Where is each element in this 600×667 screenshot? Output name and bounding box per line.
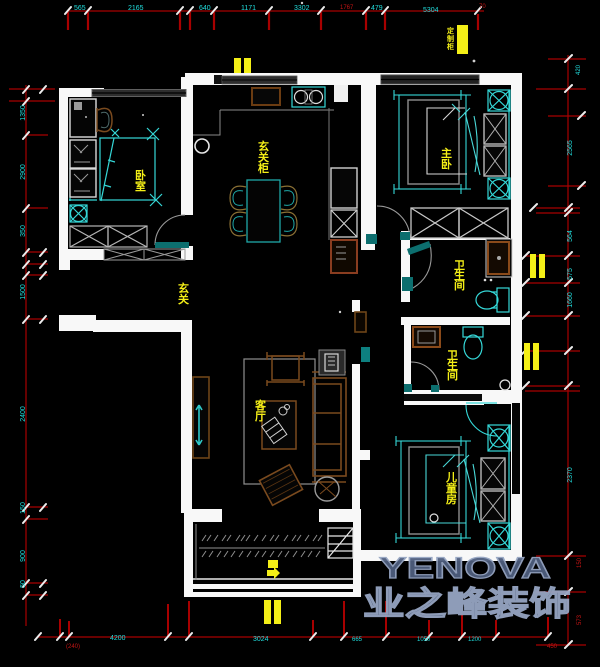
svg-text:479: 479 xyxy=(371,5,383,12)
svg-text:客: 客 xyxy=(254,398,267,412)
svg-text:室: 室 xyxy=(135,179,146,193)
svg-text:制: 制 xyxy=(447,34,454,43)
svg-text:1050: 1050 xyxy=(417,637,431,643)
svg-text:1200: 1200 xyxy=(468,637,482,643)
svg-text:665: 665 xyxy=(352,637,363,643)
svg-text:2900: 2900 xyxy=(20,164,27,180)
svg-text:1660: 1660 xyxy=(567,292,574,308)
svg-text:定: 定 xyxy=(447,26,454,35)
svg-text:565: 565 xyxy=(74,5,86,12)
svg-text:573: 573 xyxy=(577,614,583,625)
svg-text:间: 间 xyxy=(447,369,458,382)
svg-text:业之峰装饰: 业之峰装饰 xyxy=(363,585,571,622)
svg-text:(240): (240) xyxy=(66,644,80,650)
svg-text:柜: 柜 xyxy=(446,42,454,51)
svg-text:150: 150 xyxy=(577,557,583,568)
svg-text:1171: 1171 xyxy=(241,5,256,12)
svg-text:150: 150 xyxy=(20,502,27,514)
svg-text:2565: 2565 xyxy=(567,140,574,156)
svg-text:1767: 1767 xyxy=(340,5,354,11)
svg-text:640: 640 xyxy=(199,5,211,12)
svg-text:3302: 3302 xyxy=(294,5,310,12)
svg-text:450: 450 xyxy=(547,644,558,650)
svg-text:3024: 3024 xyxy=(253,636,269,643)
svg-text:420: 420 xyxy=(576,64,582,75)
svg-text:主: 主 xyxy=(441,146,452,160)
svg-text:5304: 5304 xyxy=(423,7,439,14)
svg-text:4200: 4200 xyxy=(110,635,126,642)
svg-text:玄: 玄 xyxy=(258,139,269,153)
svg-text:900: 900 xyxy=(20,550,27,562)
svg-text:2370: 2370 xyxy=(567,467,574,483)
svg-text:575: 575 xyxy=(567,268,574,280)
svg-text:YENOVA: YENOVA xyxy=(379,552,551,585)
svg-text:1350: 1350 xyxy=(20,105,27,121)
svg-text:关: 关 xyxy=(178,292,189,306)
svg-text:卧: 卧 xyxy=(441,158,452,171)
svg-text:间: 间 xyxy=(454,279,465,292)
svg-text:350: 350 xyxy=(20,225,27,237)
svg-text:房: 房 xyxy=(446,492,457,506)
svg-text:关: 关 xyxy=(258,150,269,164)
svg-text:70: 70 xyxy=(479,4,486,10)
svg-text:2400: 2400 xyxy=(20,406,27,422)
svg-text:1500: 1500 xyxy=(20,284,27,300)
svg-text:童: 童 xyxy=(446,481,457,495)
svg-text:564: 564 xyxy=(567,230,574,242)
svg-text:50: 50 xyxy=(20,580,27,588)
svg-text:2165: 2165 xyxy=(128,5,144,12)
svg-text:厅: 厅 xyxy=(255,410,266,423)
svg-text:柜: 柜 xyxy=(257,161,269,175)
svg-text:玄: 玄 xyxy=(178,281,189,295)
